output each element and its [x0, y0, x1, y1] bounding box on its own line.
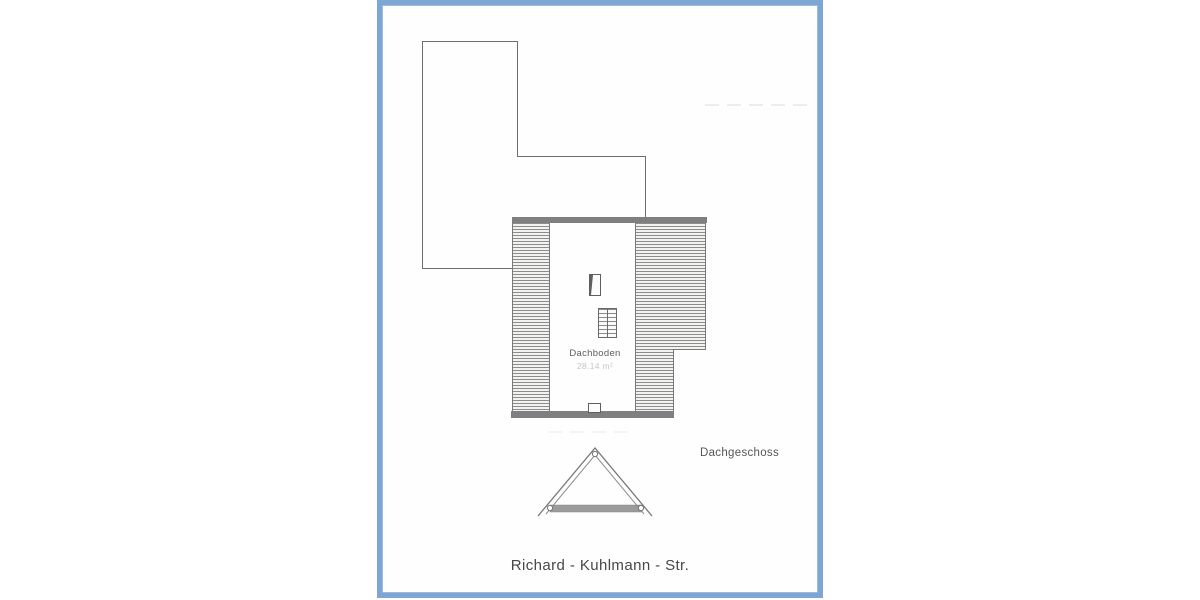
outline-right-drop-edge — [645, 156, 646, 218]
outline-upper-right-edge — [517, 41, 518, 156]
outline-mid-edge — [517, 156, 646, 157]
street-title: Richard - Kuhlmann - Str. — [377, 557, 823, 574]
outline-top-edge — [422, 41, 518, 42]
room-label: Dachboden — [545, 348, 645, 359]
scan-artifact — [548, 431, 628, 433]
roof-slope-hatch-right-upper — [635, 223, 706, 349]
left-eave-joint-circle — [547, 505, 552, 510]
ceiling-joist-band — [550, 505, 642, 512]
floor-hatch-symbol — [588, 403, 601, 413]
floor-name-label: Dachgeschoss — [700, 447, 779, 459]
outline-bottom-edge — [422, 268, 513, 269]
right-eave-joint-circle — [638, 505, 643, 510]
stairs-center-line — [607, 309, 608, 337]
scan-artifact — [705, 104, 810, 106]
apex-joint-circle — [592, 451, 597, 456]
room-area-label: 28.14 m² — [545, 361, 645, 371]
outline-left-edge — [422, 41, 423, 268]
chimney-symbol — [589, 274, 601, 296]
roof-step-line — [674, 349, 706, 350]
roof-slope-hatch-left — [512, 223, 550, 411]
stairs-symbol — [598, 308, 617, 338]
roof-truss-section-drawing — [530, 442, 660, 522]
